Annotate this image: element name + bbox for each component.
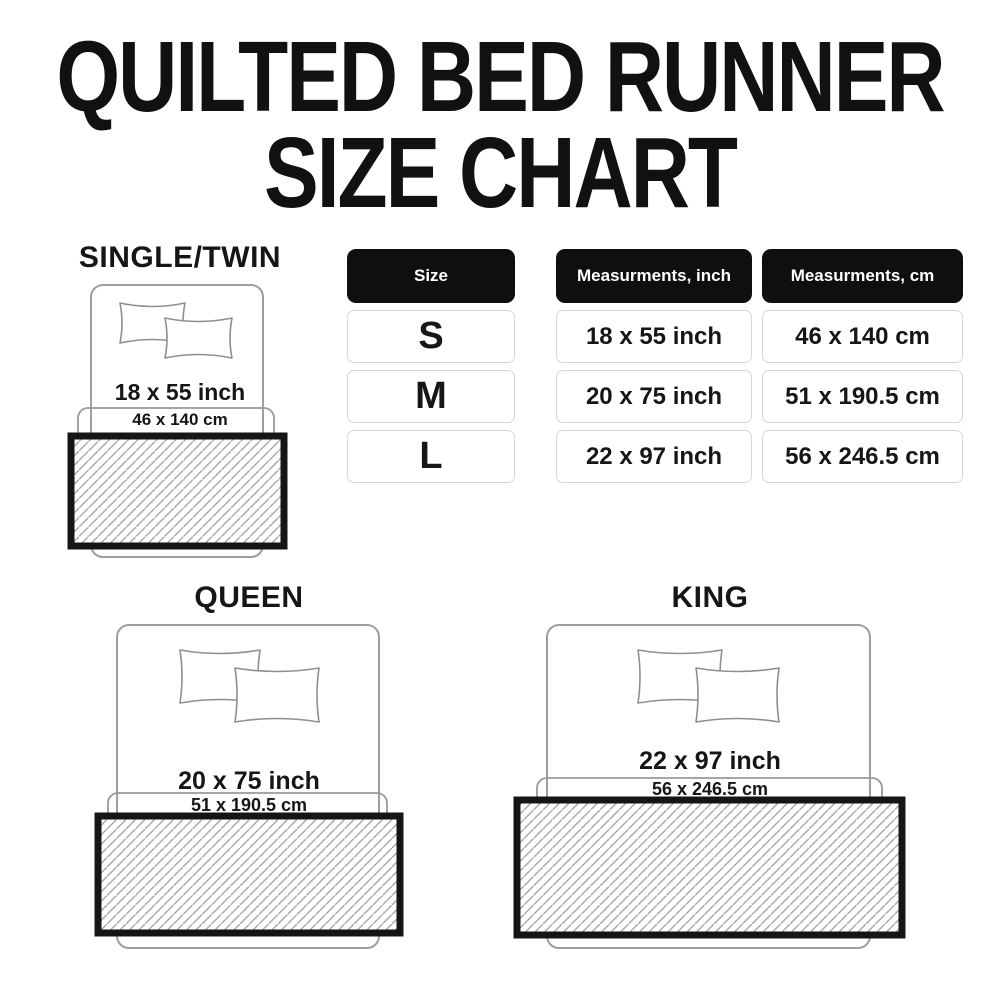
- column-header-cm: Measurments, cm: [762, 249, 963, 303]
- single-cm-measurement: 46 x 140 cm: [60, 411, 300, 428]
- column-header-size: Size: [347, 249, 515, 303]
- page-title-line-1: QUILTED BED RUNNER: [0, 28, 1000, 128]
- cm-l-cell: 56 x 246.5 cm: [762, 430, 963, 483]
- single-inch-measurement: 18 x 55 inch: [60, 381, 300, 404]
- cm-m-cell: 51 x 190.5 cm: [762, 370, 963, 423]
- size-column: Size S M L: [347, 249, 515, 490]
- king-cm-measurement: 56 x 246.5 cm: [505, 780, 915, 798]
- king-inch-measurement: 22 x 97 inch: [505, 749, 915, 774]
- queen-inch-measurement: 20 x 75 inch: [88, 769, 410, 794]
- single-bed-runner: [71, 436, 284, 546]
- queen-pillow-right-icon: [235, 668, 319, 722]
- size-l-cell: L: [347, 430, 515, 483]
- queen-cm-measurement: 51 x 190.5 cm: [88, 796, 410, 814]
- king-pillow-right-icon: [696, 668, 779, 722]
- king-bed-runner: [517, 800, 902, 935]
- inch-s-cell: 18 x 55 inch: [556, 310, 752, 363]
- size-s-cell: S: [347, 310, 515, 363]
- size-chart-infographic: QUILTED BED RUNNER SIZE CHART Size S M L…: [0, 0, 1000, 1000]
- inch-column: Measurments, inch 18 x 55 inch 20 x 75 i…: [556, 249, 752, 490]
- inch-m-cell: 20 x 75 inch: [556, 370, 752, 423]
- size-m-cell: M: [347, 370, 515, 423]
- column-header-inch: Measurments, inch: [556, 249, 752, 303]
- size-table: Size S M L Measurments, inch 18 x 55 inc…: [347, 249, 963, 490]
- inch-l-cell: 22 x 97 inch: [556, 430, 752, 483]
- single-pillow-right-icon: [165, 318, 232, 358]
- page-title-line-2: SIZE CHART: [0, 124, 1000, 224]
- king-label: KING: [505, 583, 915, 613]
- queen-bed-runner: [98, 816, 400, 933]
- queen-label: QUEEN: [88, 583, 410, 613]
- single-twin-label: SINGLE/TWIN: [60, 243, 300, 273]
- cm-s-cell: 46 x 140 cm: [762, 310, 963, 363]
- cm-column: Measurments, cm 46 x 140 cm 51 x 190.5 c…: [762, 249, 963, 490]
